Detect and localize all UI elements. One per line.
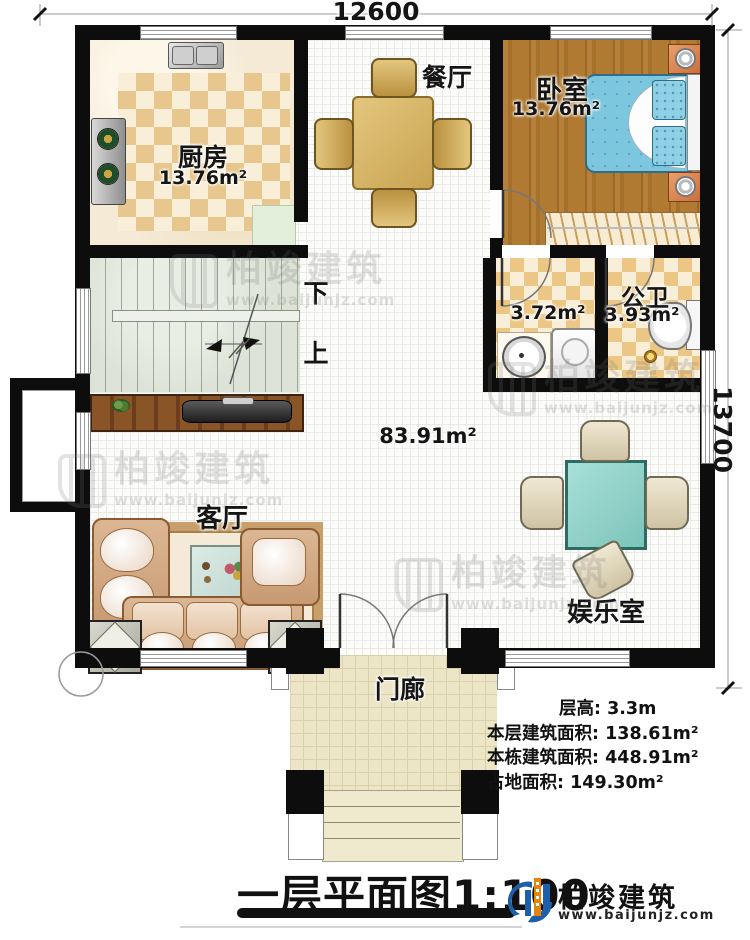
room-area-bathroom: 3.93m² [605, 304, 680, 326]
window-kitchen [140, 26, 237, 40]
room-label-living: 客厅 [196, 498, 248, 535]
staircase [90, 258, 300, 392]
sofa-pillow [100, 528, 154, 572]
door-gap [606, 245, 654, 258]
porch-step-line [324, 822, 460, 823]
stat-floor-height: 层高: 3.3m [487, 697, 737, 722]
dining-chair [371, 188, 417, 228]
room-area-bedroom: 13.76m² [512, 98, 600, 120]
dining-chair [432, 118, 472, 170]
wall-kitchen-bottom [75, 245, 308, 258]
room-area-laundry: 3.72m² [511, 302, 586, 324]
porch-pillar [286, 770, 324, 814]
window-bedroom [550, 26, 652, 40]
kitchen-mat [252, 205, 296, 247]
kitchen-sink-basin [172, 46, 194, 65]
wall-bath-bottom [483, 378, 715, 392]
wall-bedroom-left-upper [490, 40, 503, 190]
hall-area-label: 83.91m² [379, 424, 477, 448]
stat-floor-area: 本层建筑面积: 138.61m² [487, 722, 737, 747]
stove-burner [97, 163, 119, 185]
door-gap [502, 245, 550, 258]
dimension-top: 12600 [333, 0, 420, 26]
dining-chair [314, 118, 354, 170]
brand-logo-icon [508, 872, 556, 926]
stat-building-area: 本栋建筑面积: 448.91m² [487, 746, 737, 771]
wardrobe-rail [547, 227, 698, 229]
window-stairs [76, 288, 91, 374]
porch-pillar [461, 628, 499, 674]
stairs-up-label: 上 [303, 334, 328, 370]
stair-rail [112, 310, 300, 322]
wall-kitchen-right [294, 40, 308, 222]
brand-url: www.baijunjz.com [558, 908, 715, 923]
bed-headboard [687, 74, 701, 171]
floor-plan-sheet: 餐厅 厨房 13.76m² 卧室 13.76m² 3.72m² 公卫 3.93m… [0, 0, 750, 940]
kitchen-sink-basin [196, 46, 218, 65]
laundry-sink [502, 336, 546, 378]
game-chair [520, 476, 564, 530]
stat-footprint: 占地面积: 149.30m² [487, 771, 737, 796]
armchair-pillow [252, 538, 306, 586]
nightstand-lamp-icon [675, 176, 696, 197]
room-label-porch: 门廊 [375, 670, 425, 706]
tv-stand [222, 397, 254, 405]
stove-burner [97, 128, 119, 150]
porch-step-line [324, 806, 460, 807]
dining-table [352, 96, 434, 190]
room-label-entertainment: 娱乐室 [567, 592, 645, 629]
dimension-right: 13700 [708, 386, 737, 473]
wall-right [700, 25, 715, 668]
stairs-down-label: 下 [303, 274, 328, 310]
bay-window-inner [22, 390, 80, 502]
table-cup-icon [202, 562, 210, 570]
bed-pillow [652, 126, 686, 166]
plant-icon [112, 399, 130, 412]
window-entertainment [505, 650, 630, 667]
porch-step-line [324, 838, 460, 839]
porch-steps [322, 790, 464, 862]
nightstand-lamp-icon [675, 48, 696, 69]
dining-chair [371, 58, 417, 98]
wall-laundry-left [483, 258, 496, 392]
game-chair [580, 420, 630, 462]
bed-pillow [652, 80, 686, 120]
porch-pillar-base [288, 812, 324, 860]
laundry-sink-drain [519, 353, 524, 358]
title-underline-thin [180, 926, 522, 928]
door-gap-bedroom [490, 190, 503, 238]
game-chair [645, 476, 689, 530]
porch-pillar [286, 628, 324, 674]
window-living [140, 650, 247, 667]
wardrobe [545, 212, 702, 247]
washing-machine-door [561, 338, 589, 366]
room-area-kitchen: 13.76m² [159, 167, 247, 189]
title-underline [237, 908, 515, 918]
stats-panel: 层高: 3.3m 本层建筑面积: 138.61m² 本栋建筑面积: 448.91… [487, 697, 737, 795]
room-label-dining: 餐厅 [422, 58, 472, 94]
game-table [565, 460, 647, 550]
table-cup-icon [204, 576, 211, 583]
window-bay [76, 412, 91, 470]
porch-pillar-base [462, 812, 498, 860]
floor-drain-icon [644, 350, 657, 363]
window-dining [345, 26, 444, 40]
